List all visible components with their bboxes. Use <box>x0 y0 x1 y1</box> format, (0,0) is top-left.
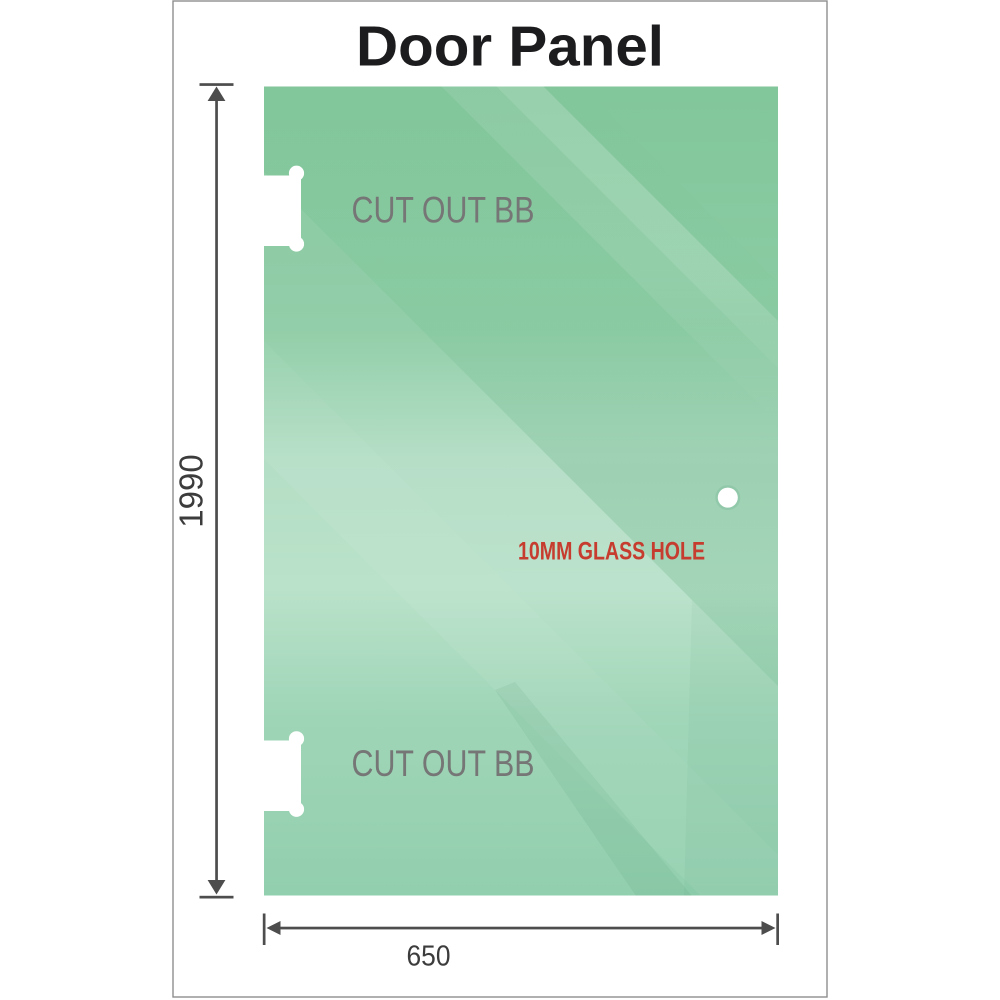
svg-text:1990: 1990 <box>173 454 210 527</box>
svg-text:CUT OUT BB: CUT OUT BB <box>352 742 535 784</box>
svg-text:Door Panel: Door Panel <box>356 15 664 79</box>
svg-text:650: 650 <box>407 941 451 973</box>
svg-text:CUT OUT BB: CUT OUT BB <box>352 189 535 231</box>
svg-text:10MM GLASS HOLE: 10MM GLASS HOLE <box>518 538 705 566</box>
